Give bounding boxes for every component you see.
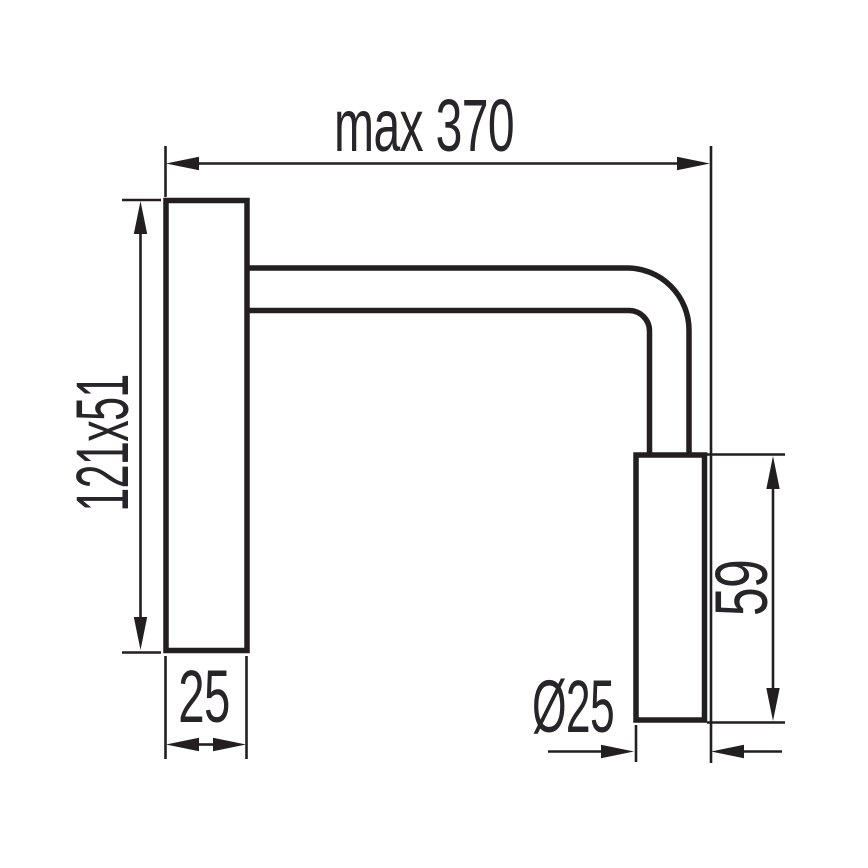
product-outline [166,201,705,721]
arrowhead-platedepth-left [166,738,199,751]
arrowhead-maxwidth-left [166,157,199,170]
wall-mount-plate [166,201,247,651]
dimension-label-head-length: 59 [705,560,779,616]
arrowhead-headlen-top [766,456,779,489]
arrowhead-headlen-bottom [766,688,779,721]
dimension-label-max-width: max 370 [334,89,514,163]
dimension-drawing: max 370 121x51 59 25 Ø25 [0,0,868,868]
arrowhead-plate-bottom [134,617,147,650]
arrowhead-maxwidth-right [677,157,710,170]
dimension-label-head-diameter: Ø25 [532,670,614,744]
lamp-head [636,455,705,720]
arrowhead-headdia-right [711,745,744,758]
arm-inner-line [247,311,650,454]
dimension-label-plate-size: 121x51 [66,374,140,511]
arrowhead-platedepth-right [213,738,246,751]
arrowhead-plate-top [134,201,147,234]
arm-outer-line [247,268,689,453]
dimension-label-plate-depth: 25 [178,660,229,734]
